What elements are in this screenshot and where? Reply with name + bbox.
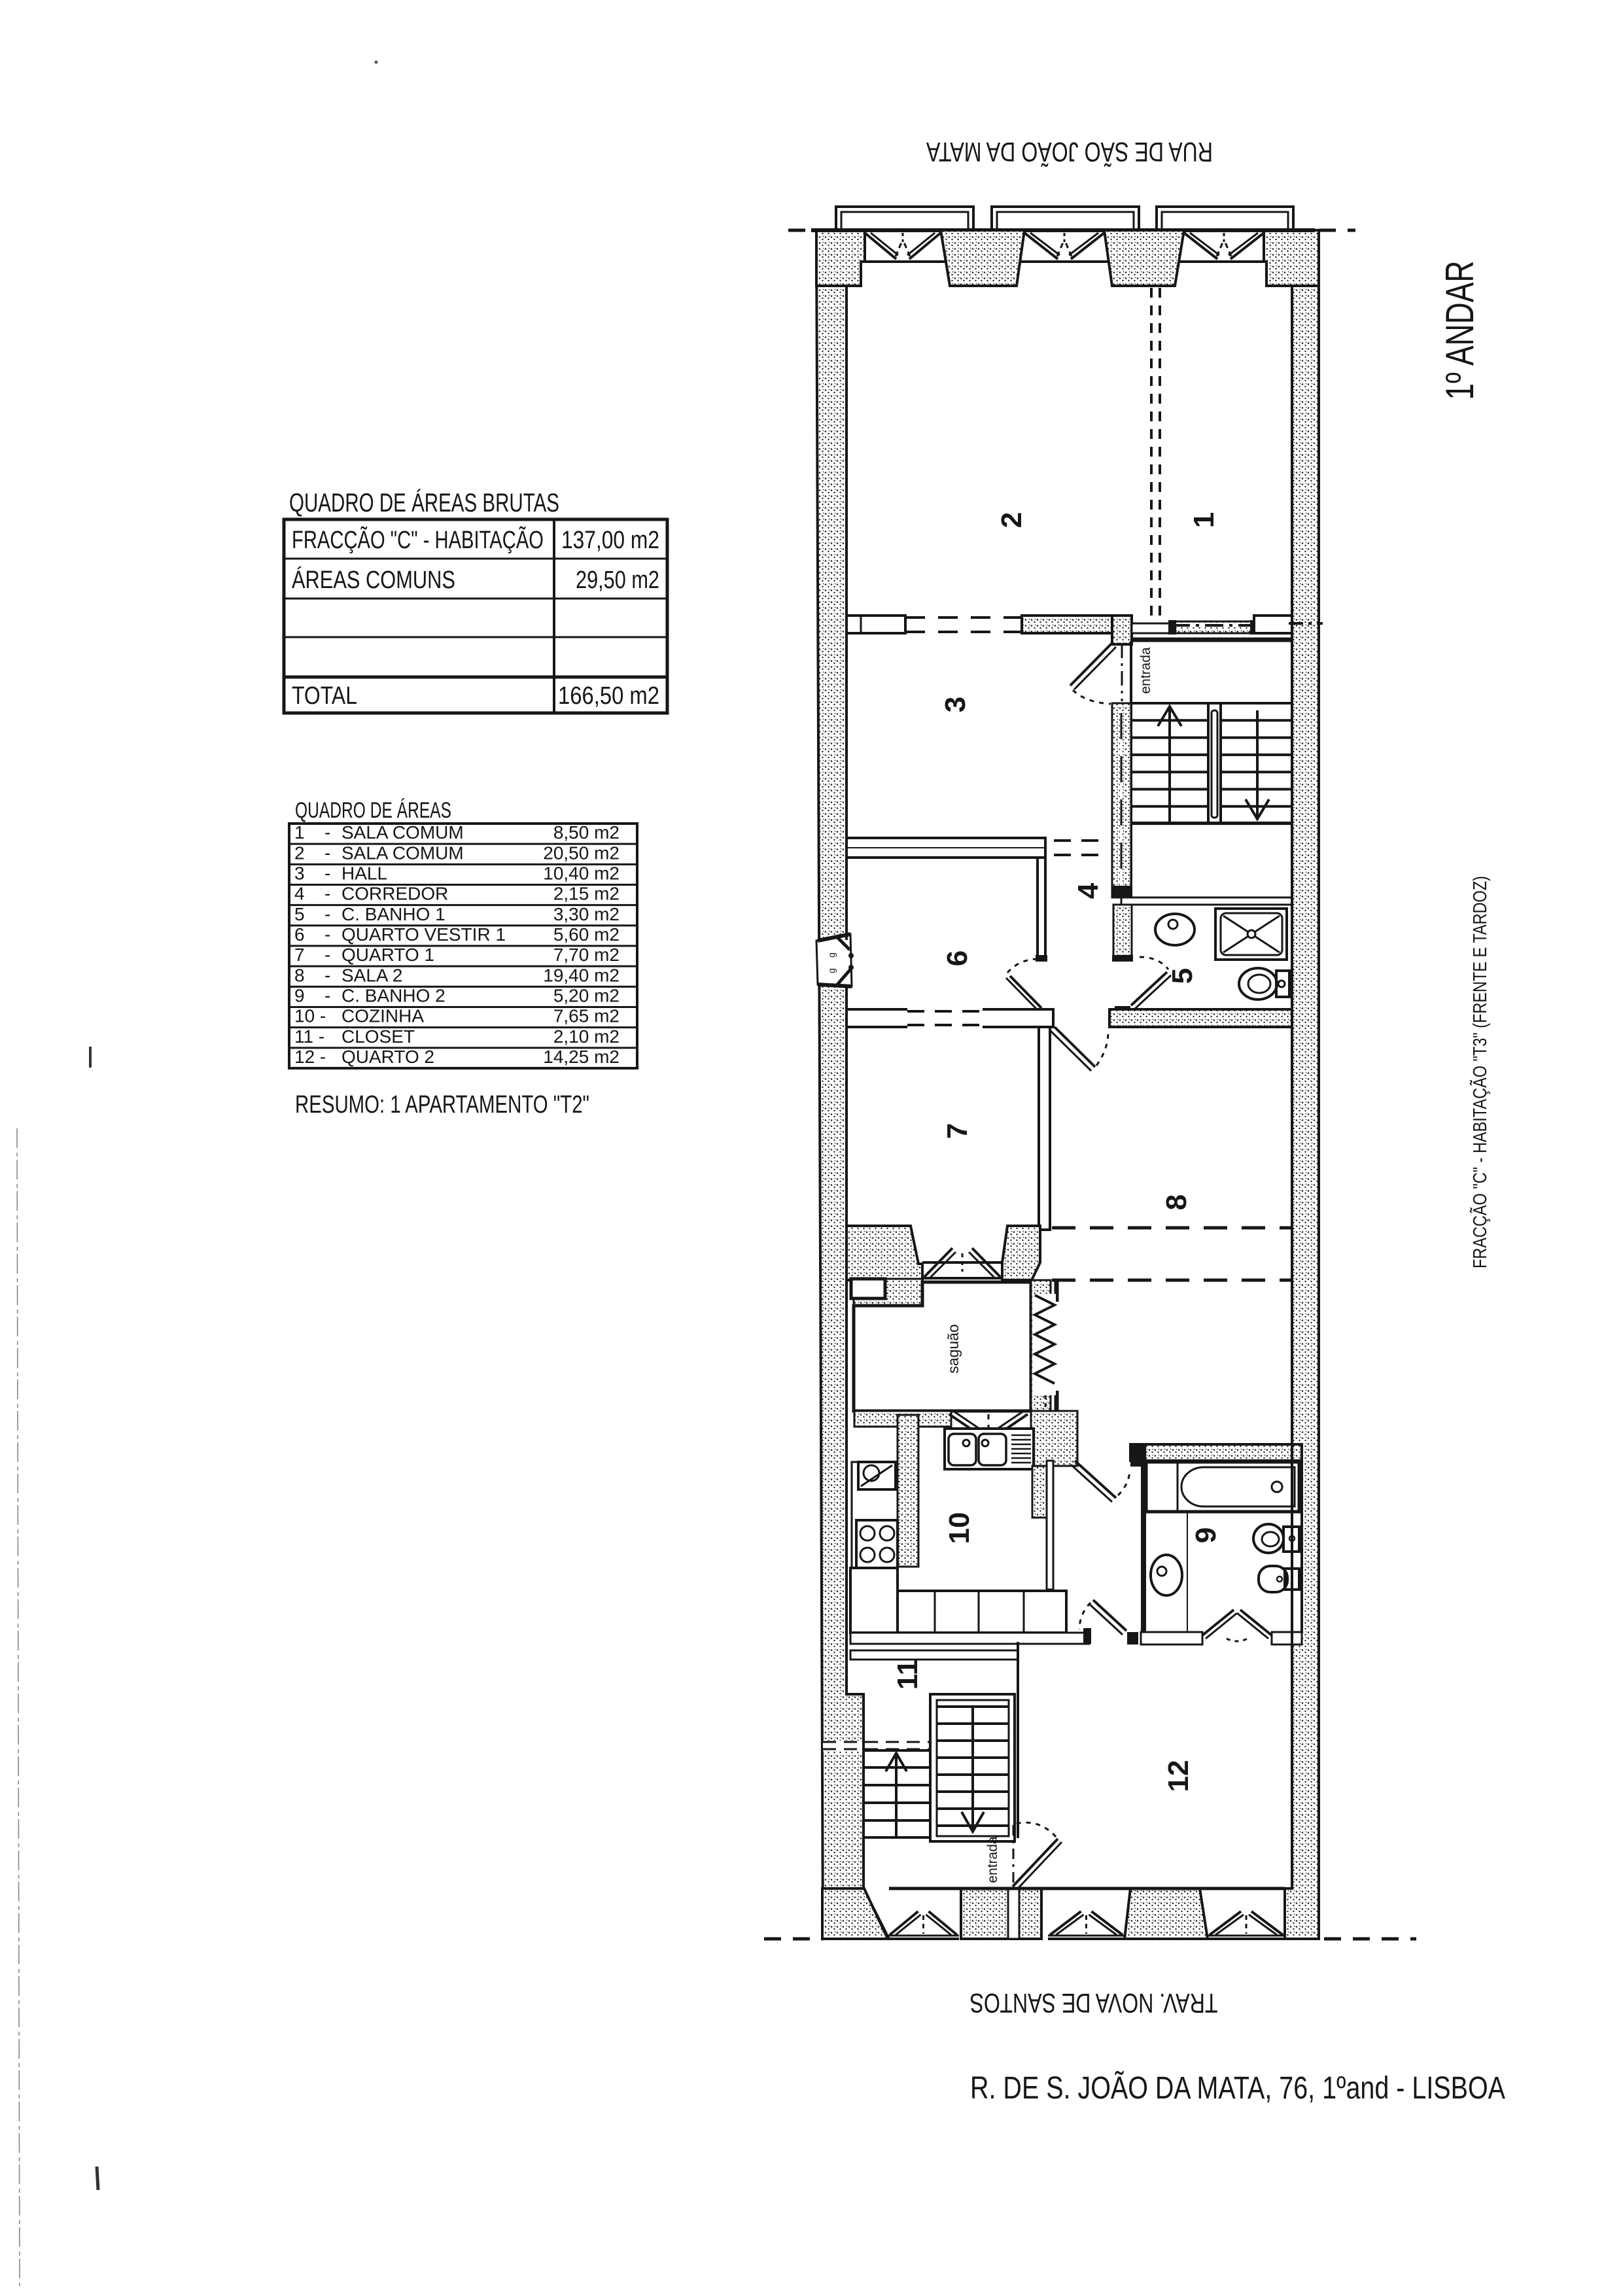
svg-text:10,40 m2: 10,40 m2 <box>543 863 620 884</box>
svg-text:TRAV. NOVA DE SANTOS: TRAV. NOVA DE SANTOS <box>970 1988 1218 2019</box>
svg-text:ÁREAS COMUNS: ÁREAS COMUNS <box>292 566 455 594</box>
svg-text:9: 9 <box>294 986 305 1006</box>
svg-text:-: - <box>324 924 330 945</box>
svg-text:9: 9 <box>1190 1527 1222 1543</box>
svg-text:g: g <box>826 968 837 973</box>
svg-text:QUARTO 2: QUARTO 2 <box>341 1047 434 1067</box>
svg-text:g: g <box>826 952 837 958</box>
svg-text:R. DE S. JOÃO DA MATA, 76, 1ºa: R. DE S. JOÃO DA MATA, 76, 1ºand - LISBO… <box>970 2070 1505 2106</box>
svg-text:8,50 m2: 8,50 m2 <box>553 822 620 843</box>
svg-text:1: 1 <box>1188 512 1220 528</box>
svg-text:C. BANHO 2: C. BANHO 2 <box>341 986 445 1006</box>
svg-text:3,30 m2: 3,30 m2 <box>553 904 620 924</box>
svg-text:6: 6 <box>941 950 973 966</box>
svg-text:137,00 m2: 137,00 m2 <box>561 527 659 554</box>
svg-text:-: - <box>324 904 330 924</box>
svg-text:QUARTO VESTIR 1: QUARTO VESTIR 1 <box>341 924 506 945</box>
svg-text:FRACÇÃO "C" - HABITAÇÃO: FRACÇÃO "C" - HABITAÇÃO <box>292 526 544 554</box>
svg-text:QUADRO DE ÁREAS: QUADRO DE ÁREAS <box>295 798 451 823</box>
svg-text:2,10 m2: 2,10 m2 <box>553 1026 620 1047</box>
svg-text:-: - <box>324 863 330 884</box>
svg-text:7: 7 <box>294 945 305 965</box>
svg-text:11 -: 11 - <box>294 1026 324 1047</box>
svg-text:5,60 m2: 5,60 m2 <box>553 924 620 945</box>
svg-text:10: 10 <box>943 1512 975 1544</box>
svg-text:FRACÇÃO "C" - HABITAÇÃO "T3" (: FRACÇÃO "C" - HABITAÇÃO "T3" (FRENTE E T… <box>1469 876 1491 1268</box>
svg-text:saguão: saguão <box>945 1324 962 1373</box>
svg-text:2,15 m2: 2,15 m2 <box>553 884 620 904</box>
svg-text:3: 3 <box>939 697 971 712</box>
svg-text:SALA 2: SALA 2 <box>341 965 402 985</box>
svg-text:3: 3 <box>294 863 305 884</box>
svg-text:HALL: HALL <box>341 863 387 884</box>
svg-text:4: 4 <box>1072 882 1104 899</box>
svg-text:12 -: 12 - <box>294 1047 326 1067</box>
svg-text:7: 7 <box>941 1123 973 1139</box>
svg-text:11: 11 <box>892 1660 924 1690</box>
svg-text:5: 5 <box>294 904 305 924</box>
svg-text:COZINHA: COZINHA <box>341 1006 424 1026</box>
svg-text:166,50 m2: 166,50 m2 <box>558 682 659 710</box>
svg-text:19,40 m2: 19,40 m2 <box>543 965 620 985</box>
svg-text:RUA DE SÃO JOÃO DA MATA: RUA DE SÃO JOÃO DA MATA <box>926 137 1213 167</box>
svg-text:7,65 m2: 7,65 m2 <box>553 1006 620 1026</box>
svg-text:1º ANDAR: 1º ANDAR <box>1438 261 1482 400</box>
svg-text:4: 4 <box>294 884 305 904</box>
svg-text:2: 2 <box>996 512 1028 528</box>
svg-text:SALA COMUM: SALA COMUM <box>341 843 464 863</box>
svg-text:6: 6 <box>294 924 305 945</box>
svg-text:RESUMO: 1 APARTAMENTO "T2": RESUMO: 1 APARTAMENTO "T2" <box>295 1091 589 1119</box>
svg-text:-: - <box>324 822 330 843</box>
svg-text:2: 2 <box>294 843 305 863</box>
svg-text:8: 8 <box>1161 1194 1193 1210</box>
svg-text:entrada: entrada <box>1138 647 1153 694</box>
svg-text:-: - <box>324 986 330 1006</box>
svg-text:QUADRO DE ÁREAS BRUTAS: QUADRO DE ÁREAS BRUTAS <box>289 488 559 517</box>
svg-text:5,20 m2: 5,20 m2 <box>553 986 620 1006</box>
svg-text:12: 12 <box>1162 1760 1195 1792</box>
svg-text:20,50 m2: 20,50 m2 <box>543 843 620 863</box>
svg-text:QUARTO 1: QUARTO 1 <box>341 945 434 965</box>
svg-text:10 -: 10 - <box>294 1006 326 1026</box>
svg-text:1: 1 <box>294 822 305 843</box>
svg-text:8: 8 <box>294 965 305 985</box>
svg-text:CORREDOR: CORREDOR <box>341 884 448 904</box>
svg-text:SALA COMUM: SALA COMUM <box>341 822 464 843</box>
svg-text:-: - <box>324 884 330 904</box>
svg-text:-: - <box>324 965 330 985</box>
svg-text:C. BANHO 1: C. BANHO 1 <box>341 904 445 924</box>
svg-text:-: - <box>324 843 330 863</box>
svg-text:TOTAL: TOTAL <box>292 682 357 710</box>
svg-text:CLOSET: CLOSET <box>341 1026 415 1047</box>
svg-text:entrada: entrada <box>985 1836 1000 1883</box>
svg-text:-: - <box>324 945 330 965</box>
svg-text:14,25 m2: 14,25 m2 <box>543 1047 620 1067</box>
svg-text:29,50 m2: 29,50 m2 <box>576 566 659 594</box>
svg-text:7,70 m2: 7,70 m2 <box>553 945 620 965</box>
